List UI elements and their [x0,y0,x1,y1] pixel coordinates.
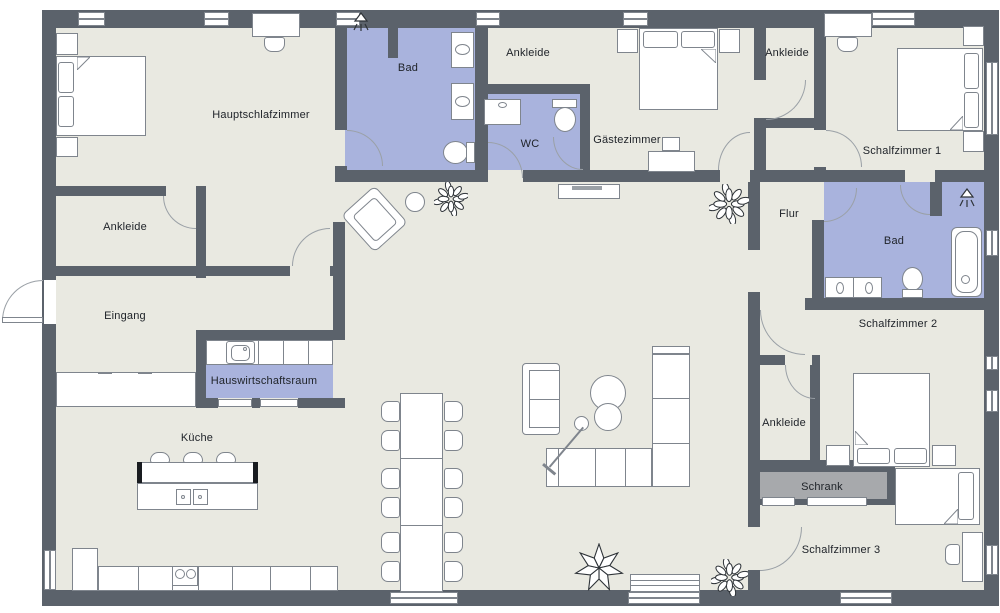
room-label-wc: WC [521,138,540,150]
room-label-gaestezimmer: Gästezimmer [593,134,661,146]
sliding-door [807,497,867,506]
divider [400,458,443,459]
bathtub-drain [961,275,970,284]
wall [333,222,345,266]
wall [196,186,206,278]
floorplan-canvas: HauptschlafzimmerAnkleideEingangHauswirt… [0,0,1000,613]
dining-chair [381,430,400,451]
nightstand [932,445,956,466]
window-icon [986,230,998,256]
sink-basin [836,282,844,294]
wall [196,330,345,340]
tv-board-handle [572,186,602,190]
cooktop-knob [181,495,185,499]
wall [812,355,820,365]
utility-sink-basin [231,345,250,361]
room-label-eingang: Eingang [104,310,146,322]
divider [595,448,596,487]
divider [232,566,233,591]
shower-icon [350,11,372,33]
divider [310,566,311,591]
wardrobe-handle [98,372,112,374]
window-icon [986,390,998,412]
bar-stool [216,452,236,463]
utility-door-leaf [218,399,252,407]
window-icon [390,592,458,604]
wall [814,170,905,182]
toilet-bowl [554,107,576,132]
wall [56,186,166,196]
wall [335,26,347,130]
wall [935,170,984,182]
sink-bowl [186,569,196,579]
dresser [648,151,695,172]
island-bar-cap [137,462,142,483]
dining-chair [381,468,400,489]
window-icon [78,12,105,26]
pillow [894,448,927,464]
dining-chair [444,430,463,451]
dining-chair [444,401,463,422]
blanket-fold [701,49,716,63]
wall [812,220,824,298]
island-bar-cap [253,462,258,483]
room-label-kueche: Küche [181,432,213,444]
divider [138,566,139,591]
tv [662,137,680,151]
pillow [681,31,715,48]
nightstand [56,33,78,55]
wall [748,182,760,250]
toilet-bowl [902,267,923,291]
wardrobe [56,372,196,407]
pillow [857,448,890,464]
bar-stool [183,452,203,463]
wall [748,355,785,365]
bar-stool [150,452,170,463]
pillow [643,31,678,48]
wall [488,84,590,94]
nightstand [826,445,850,466]
wall [333,276,345,330]
sink-basin [455,96,470,107]
window-icon [476,12,500,26]
wall [814,167,826,182]
room-label-hauswirtschaftsraum: Hauswirtschaftsraum [211,375,318,387]
sliding-door [762,497,795,506]
room-label-ankleide-3: Ankleide [765,47,809,59]
blanket-fold [77,57,90,70]
dining-chair [444,532,463,553]
divider [283,340,284,365]
desk [962,532,983,582]
divider [308,340,309,365]
sink-bowl [175,569,185,579]
pillow [964,92,979,128]
wall [750,170,814,182]
dining-chair [444,468,463,489]
nightstand [963,131,984,152]
desk-chair [837,37,858,52]
room-label-ankleide-2: Ankleide [506,47,550,59]
tall-cabinet [72,548,98,591]
divider [853,277,854,298]
pillow [58,96,74,127]
cooktop-knob [198,495,202,499]
wall [754,118,820,128]
plant-bush-icon [709,184,749,224]
window-icon [840,592,892,604]
front-door-swing [2,280,43,321]
divider [652,443,690,444]
room-label-bad-1: Bad [398,62,418,74]
wall [298,398,345,408]
wall [748,292,760,527]
nightstand [963,26,984,46]
dining-chair [381,401,400,422]
window-icon [204,12,229,26]
room-label-ankleide-4: Ankleide [762,417,806,429]
sink-basin [865,282,873,294]
front-door-opening [44,280,56,324]
room-label-schrank: Schrank [801,481,843,493]
dining-chair [381,532,400,553]
window-icon [986,545,998,575]
desk [252,13,300,37]
bench [630,574,700,592]
front-door-leaf [2,317,43,323]
pillow [958,472,974,520]
nightstand [719,29,740,53]
room-label-bad-2: Bad [884,235,904,247]
desk [824,13,872,37]
plant-star-icon [574,543,624,593]
plant-bush-icon [434,182,468,216]
window-icon [628,592,700,604]
wall [475,26,488,84]
divider [529,399,560,400]
divider [258,340,259,365]
room-label-schalfzimmer-3: Schalfzimmer 3 [802,544,881,556]
wall [252,398,260,408]
wall [754,10,766,80]
dining-table [400,393,443,592]
sink-knob [498,102,507,108]
utility-door-leaf [260,399,298,407]
room-label-schalfzimmer-1: Schalfzimmer 1 [863,145,942,157]
divider [652,398,690,399]
coffee-table [594,403,622,431]
toilet-tank [902,289,923,298]
wall [475,84,488,170]
wall [196,340,206,398]
wall [345,170,488,182]
divider [270,566,271,591]
pillow [964,53,979,89]
divider [625,448,626,487]
dining-chair [381,497,400,518]
window-icon [986,62,998,135]
wall [930,182,942,216]
window-icon [872,12,915,26]
plant-bush-icon [711,559,748,596]
dining-chair [444,561,463,582]
wall [748,570,760,590]
wall [754,128,766,170]
desk-chair [264,37,285,52]
kitchen-counter [98,566,338,591]
nightstand [617,29,638,53]
room-label-ankleide-1: Ankleide [103,221,147,233]
toilet-bowl [443,141,468,164]
shower-icon [956,187,978,209]
room-label-schalfzimmer-2: Schalfzimmer 2 [859,318,938,330]
island-bar [137,462,258,483]
wall [330,266,345,276]
divider [630,580,700,581]
desk-chair [945,544,960,565]
sofa-section [652,354,690,487]
wall [795,499,807,505]
wall [56,266,290,276]
wall [750,499,762,505]
toilet-tank [466,142,475,163]
blanket-fold [944,509,958,524]
dining-chair [381,561,400,582]
room-label-hauptschlafzimmer: Hauptschlafzimmer [212,109,310,121]
window-icon [623,12,648,26]
divider [198,566,199,591]
sink-knob [243,347,247,351]
dining-chair [444,497,463,518]
sink-basin [455,44,470,55]
divider [630,585,700,586]
divider [400,525,443,526]
side-table [405,192,425,212]
wall [805,298,984,310]
blanket-fold [950,116,963,130]
sofa-back-cap [652,346,690,354]
room-label-flur: Flur [779,208,799,220]
window-icon [44,550,56,590]
blanket-fold [855,431,868,445]
wall [388,26,398,58]
wardrobe-handle [138,372,152,374]
nightstand [56,137,78,157]
wall [867,499,895,505]
window-icon [986,356,998,370]
wall [196,398,218,408]
pillow [58,62,74,93]
